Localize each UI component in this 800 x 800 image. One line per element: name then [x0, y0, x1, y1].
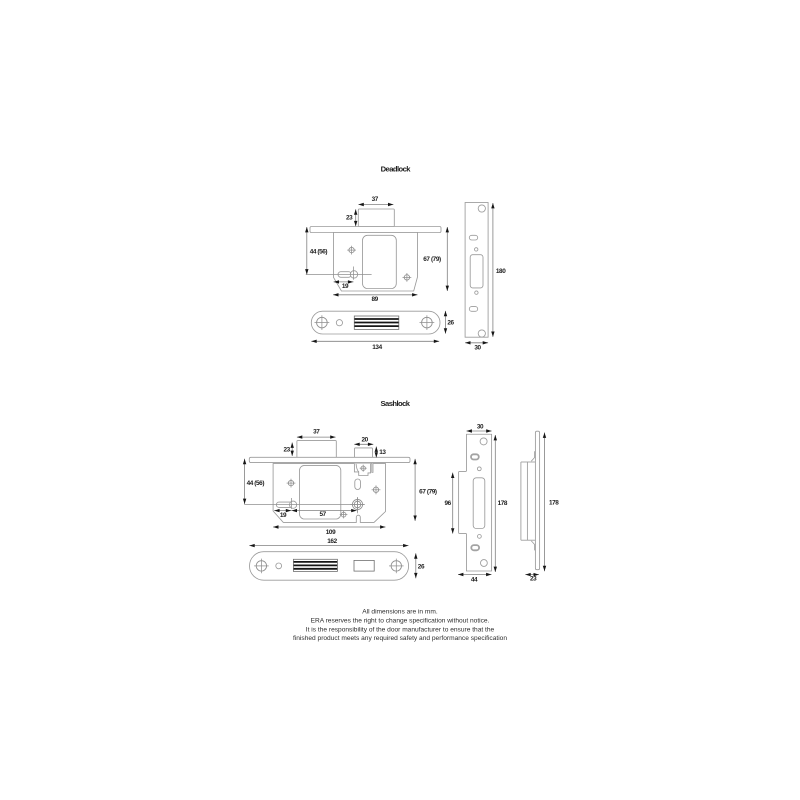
svg-text:178: 178: [498, 500, 508, 507]
svg-text:67 (79): 67 (79): [423, 256, 441, 263]
svg-text:23: 23: [346, 214, 353, 221]
svg-text:44 (56): 44 (56): [247, 480, 265, 487]
svg-text:180: 180: [496, 268, 506, 275]
svg-text:57: 57: [320, 511, 327, 518]
svg-text:30: 30: [474, 345, 481, 352]
svg-text:26: 26: [418, 563, 425, 570]
svg-text:30: 30: [477, 423, 484, 430]
svg-text:178: 178: [549, 499, 559, 506]
svg-text:23: 23: [530, 575, 537, 582]
svg-text:finished product meets any req: finished product meets any required safe…: [293, 635, 507, 642]
svg-text:96: 96: [444, 500, 451, 507]
svg-text:All dimensions are in mm.: All dimensions are in mm.: [362, 609, 438, 616]
svg-text:23: 23: [283, 446, 290, 453]
svg-text:Sashlock: Sashlock: [381, 399, 411, 408]
svg-text:44 (56): 44 (56): [310, 248, 328, 255]
svg-text:67 (79): 67 (79): [419, 488, 437, 495]
svg-text:20: 20: [362, 437, 369, 444]
svg-text:89: 89: [372, 296, 379, 303]
svg-text:134: 134: [372, 344, 382, 351]
svg-text:Deadlock: Deadlock: [381, 164, 412, 173]
svg-text:37: 37: [313, 428, 320, 435]
svg-text:13: 13: [379, 449, 386, 456]
svg-text:26: 26: [447, 319, 454, 326]
svg-text:ERA reserves the right to chan: ERA reserves the right to change specifi…: [311, 618, 490, 625]
svg-text:162: 162: [327, 538, 337, 545]
svg-text:It is the responsibility of th: It is the responsibility of the door man…: [306, 626, 495, 633]
svg-text:37: 37: [372, 196, 379, 203]
svg-text:109: 109: [326, 529, 336, 536]
svg-text:44: 44: [471, 577, 478, 584]
svg-text:19: 19: [342, 283, 349, 290]
svg-text:19: 19: [280, 512, 287, 519]
